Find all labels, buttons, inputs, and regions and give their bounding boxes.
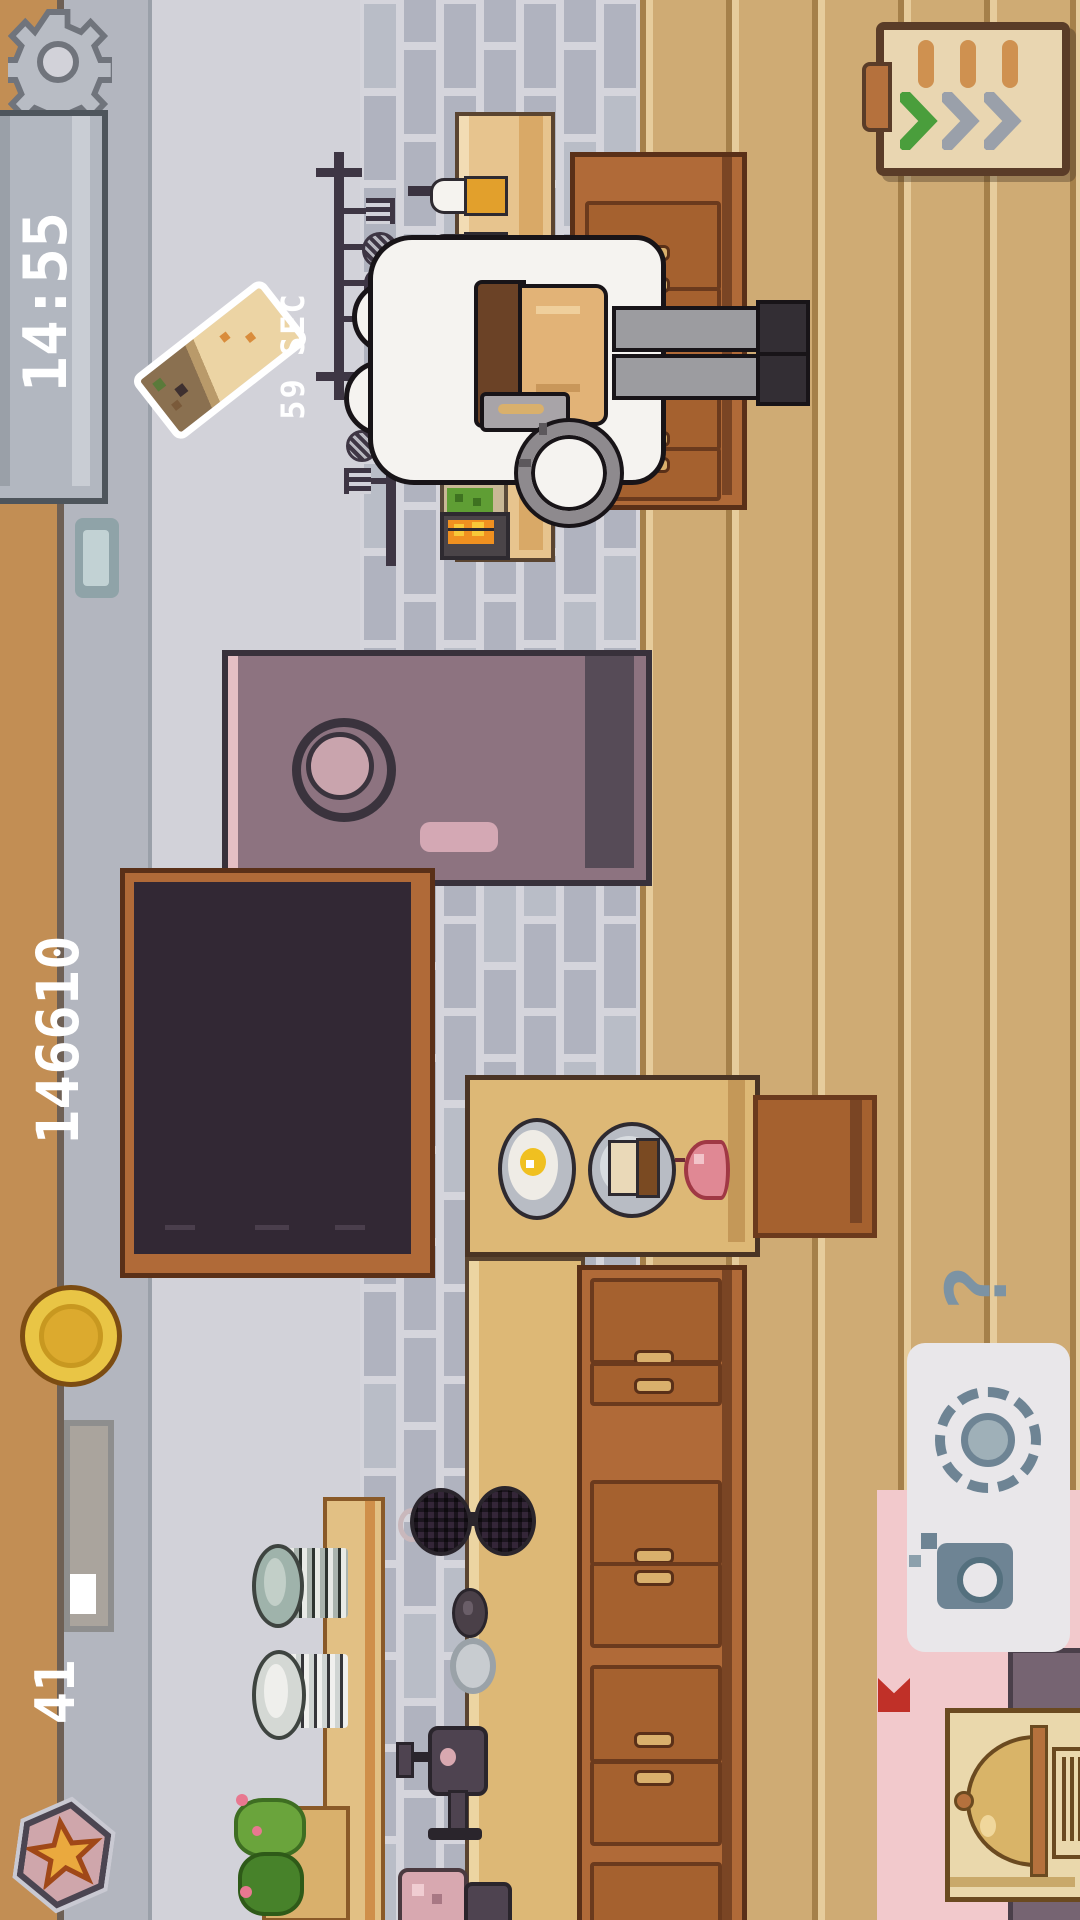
floor-tile [524,924,556,1008]
floor-tile [364,556,396,640]
help-question[interactable]: ? [935,1264,1019,1315]
floor-tile [404,0,436,42]
floor-tile [564,970,596,1054]
chevron-icon [942,92,980,150]
plate-fried-egg [498,1118,576,1220]
plate-cake [588,1122,676,1218]
progress-fill [70,1574,96,1614]
pot-on-table [292,718,396,822]
bottle-cap-amber [464,176,508,216]
floor-tile [524,556,556,640]
chef-leg-2 [612,354,772,400]
table-button [420,822,498,852]
floor-tile [604,556,636,640]
level-progress-bar [64,1420,114,1632]
delivery-clipboard[interactable] [876,22,1070,176]
lower-counter [465,1257,585,1920]
floor-tile [404,510,436,594]
league-badge[interactable] [8,1790,119,1920]
floor-tile [364,4,396,88]
floor-tile [564,878,596,962]
floor-tile [404,1614,436,1698]
flower [252,1826,262,1836]
gear-button[interactable] [8,6,112,116]
score-value: 146610 [29,935,87,1145]
timer-value: 14:55 [16,212,76,393]
floor-tile [404,1338,436,1422]
dish-panel[interactable] [907,1343,1070,1652]
floor-tile [444,924,476,1008]
timer-bar: 14:55 [0,110,108,504]
clipboard-clip [862,62,892,132]
chef-horn [518,422,620,524]
purple-table [222,650,652,886]
chevron-done-icon [900,92,938,150]
dishwasher-icon[interactable] [937,1543,1013,1609]
gear-icon [8,12,112,116]
coin-icon [20,1285,122,1387]
floor-tile [484,878,516,962]
grill-station[interactable] [440,512,510,560]
star-icon [21,1811,107,1897]
dark-pot [464,1882,512,1920]
level-value: 41 [29,1659,83,1724]
game-screen: ? [0,0,1080,1920]
chair [753,1095,877,1238]
floor-tile [484,0,516,42]
floor-tile [404,50,436,134]
chef-foot-2 [756,352,810,406]
gray-plate-oval [450,1638,496,1694]
serving-table [465,1075,760,1257]
floor-tile [484,970,516,1054]
fork-icon [366,198,395,224]
dark-table [120,868,435,1278]
floor-tile [524,4,556,88]
flame [448,520,494,544]
floor-tile [444,556,476,640]
order-slot [918,40,934,88]
pink-pot [398,1868,468,1920]
chef-foot-1 [756,300,810,358]
floor-tile [564,0,596,42]
bell-station[interactable] [945,1708,1080,1902]
flower [240,1886,252,1898]
floor-tile [564,50,596,134]
floor-tile [604,924,636,1008]
chef-leg-1 [612,306,772,352]
order-countdown: 59 SEC [277,292,309,420]
chevron-icon [984,92,1022,150]
floor-tile [364,1384,396,1468]
order-slot [960,40,976,88]
dark-ladle [452,1588,488,1638]
floor-tile [364,1292,396,1376]
flower [236,1794,248,1806]
menu-lines-panel [1052,1747,1080,1859]
floor-tile [604,4,636,88]
plate-slot-icon[interactable] [935,1387,1041,1493]
serving-bell-icon[interactable] [966,1735,1036,1867]
order-slot [1002,40,1018,88]
floor-tile [444,4,476,88]
pink-bell-small [684,1140,730,1200]
floor-tile [364,96,396,180]
wall-sink [75,518,119,598]
lower-cabinet [577,1265,747,1920]
